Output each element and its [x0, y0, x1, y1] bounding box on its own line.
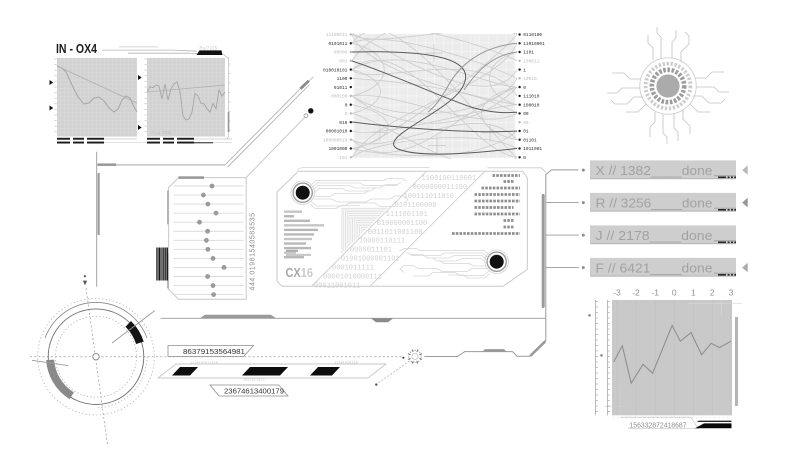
svg-text:100011: 100011: [523, 59, 540, 65]
svg-text:-3: -3: [613, 288, 621, 298]
svg-text:0: 0: [672, 288, 677, 298]
svg-text:10000110111: 10000110111: [359, 238, 405, 246]
svg-text:1: 1: [691, 288, 696, 298]
svg-text:0: 0: [345, 111, 348, 117]
svg-text:100000010: 100000010: [323, 137, 348, 143]
svg-text:010010101: 010010101: [323, 67, 348, 73]
svg-text:1011001: 1011001: [523, 146, 542, 152]
svg-text:101: 101: [339, 155, 347, 161]
svg-text:0: 0: [523, 85, 526, 91]
svg-text:00001010000111: 00001010000111: [323, 274, 382, 282]
svg-text:010000001100: 010000001100: [377, 220, 427, 228]
svg-text:1111001101: 1111001101: [386, 211, 428, 219]
svg-text:00011001011: 00011001011: [314, 283, 360, 291]
svg-text:Aug 25th: Aug 25th: [152, 130, 173, 135]
svg-text:000100: 000100: [331, 94, 348, 100]
svg-text:X // 1382____done: X // 1382____done: [596, 163, 713, 178]
svg-text:010: 010: [339, 120, 347, 126]
svg-text:0: 0: [523, 155, 526, 161]
svg-text:1110101011010: 1110101011010: [190, 362, 218, 366]
svg-text:1101: 1101: [523, 50, 534, 56]
svg-text:0101011: 0101011: [328, 41, 347, 47]
svg-text:1100100110001: 1100100110001: [422, 175, 477, 183]
svg-text:F // 6421____done: F // 6421____done: [596, 260, 713, 275]
svg-text:11100011: 11100011: [326, 32, 348, 38]
svg-text:1001000: 1001000: [328, 146, 347, 152]
svg-text:1011011010: 1011011010: [243, 379, 265, 383]
svg-text:IN - OX4: IN - OX4: [56, 42, 97, 56]
svg-text:86379153564981: 86379153564981: [183, 347, 245, 356]
svg-text:0000000011100: 0000000011100: [413, 184, 468, 192]
svg-text:-1: -1: [651, 288, 659, 298]
svg-text:10010: 10010: [523, 76, 537, 82]
svg-text:00001010: 00001010: [326, 129, 348, 135]
svg-text:156332872418687: 156332872418687: [630, 421, 687, 430]
svg-text:0011011001100: 0011011001100: [368, 229, 423, 237]
svg-text:00: 00: [523, 120, 529, 126]
svg-text:-2: -2: [632, 288, 640, 298]
svg-text:00: 00: [523, 111, 529, 117]
svg-text:444.01981540583535: 444.01981540583535: [250, 212, 257, 290]
svg-text:0: 0: [345, 102, 348, 108]
svg-text:J // 2178____done: J // 2178____done: [596, 228, 713, 243]
svg-text:2: 2: [710, 288, 715, 298]
svg-text:CX16: CX16: [286, 266, 314, 280]
svg-text:0101100000: 0101100000: [395, 202, 437, 210]
svg-text:1100: 1100: [337, 76, 348, 82]
svg-text:23674613400179: 23674613400179: [224, 387, 284, 396]
svg-text:01001000001101: 01001000001101: [341, 256, 400, 264]
svg-text:3: 3: [729, 288, 734, 298]
svg-text:01101: 01101: [523, 137, 537, 143]
svg-text:111010: 111010: [523, 94, 540, 100]
svg-text:0000011101: 0000011101: [350, 247, 392, 255]
svg-text:Ru/7225: Ru/7225: [200, 46, 218, 51]
svg-text:0110100: 0110100: [523, 32, 542, 38]
svg-text:R // 3256____done: R // 3256____done: [596, 195, 713, 210]
svg-text:100111011010: 100111011010: [404, 193, 454, 201]
svg-text:1: 1: [523, 67, 526, 73]
svg-text:01: 01: [523, 129, 529, 135]
svg-text:100010: 100010: [523, 102, 540, 108]
svg-text:11101010110: 11101010110: [334, 361, 358, 365]
svg-text:01011: 01011: [334, 85, 348, 91]
svg-text:00000: 00000: [334, 50, 348, 56]
svg-text:11010001: 11010001: [523, 41, 545, 47]
svg-text:001: 001: [339, 59, 347, 65]
svg-text:0001011111: 0001011111: [332, 265, 374, 273]
